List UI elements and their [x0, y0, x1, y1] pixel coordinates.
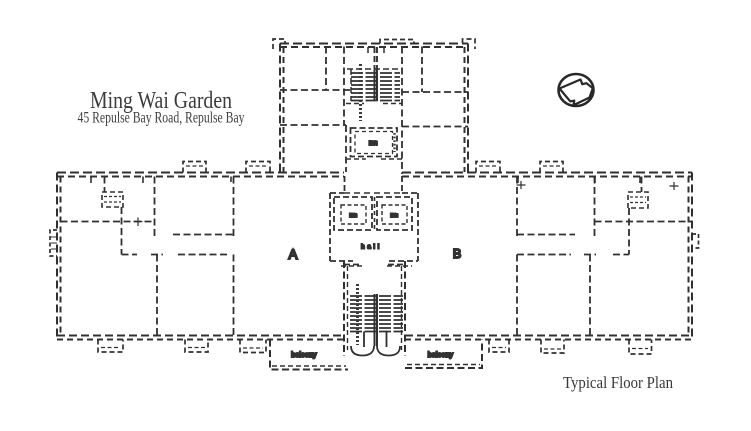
svg-text:45 Repulse Bay Road, Repulse B: 45 Repulse Bay Road, Repulse Bay	[78, 110, 245, 127]
svg-text:lift: lift	[369, 141, 378, 147]
svg-text:A: A	[288, 247, 297, 262]
svg-text:Typical Floor Plan: Typical Floor Plan	[563, 373, 673, 392]
svg-text:B: B	[453, 247, 461, 261]
svg-text:balcony: balcony	[291, 352, 317, 359]
svg-text:lift: lift	[350, 213, 358, 219]
svg-text:lift: lift	[391, 213, 399, 219]
svg-text:balcony: balcony	[428, 352, 454, 359]
svg-text:hall: hall	[361, 244, 382, 251]
